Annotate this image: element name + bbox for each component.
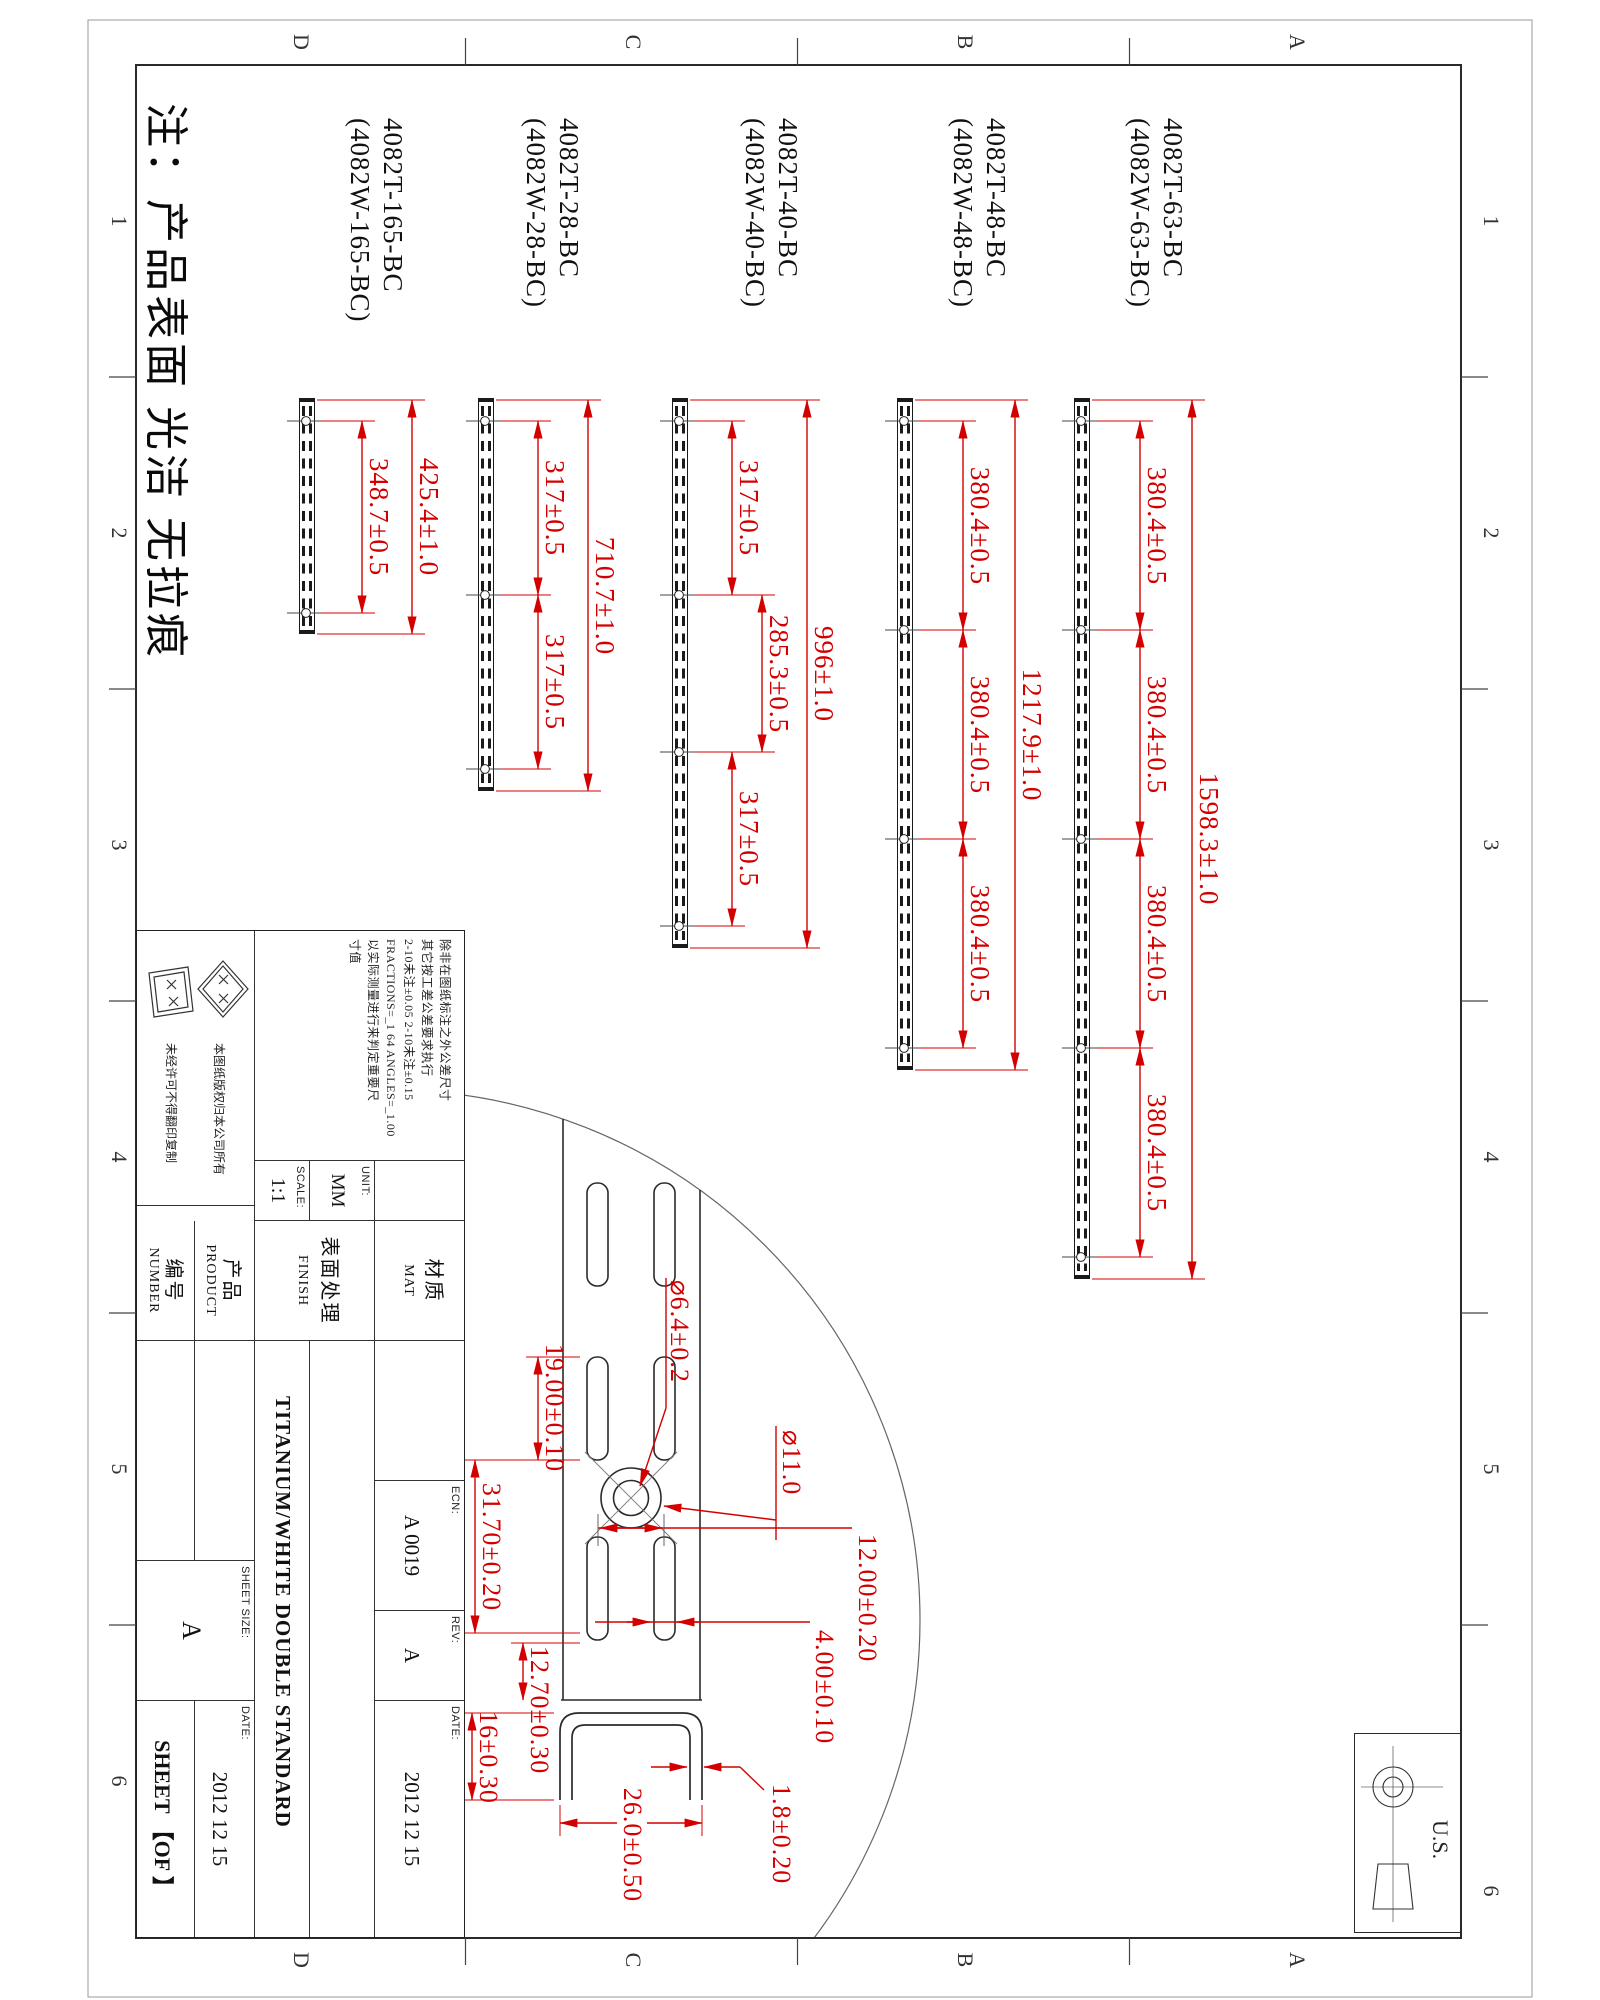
number-label-en: NUMBER [145,1221,161,1340]
ecn-cell: ECN: A 0019 [374,1481,464,1611]
part-name: 4082T-48-BC [979,118,1012,398]
finish-label-cell: 表面处理 FINISH [254,1221,374,1341]
part-alt-name: (4082W-63-BC) [1123,118,1156,398]
dim-slot-width: 4.00±0.10 [809,1630,839,1744]
product-label-en: PRODUCT [202,1221,218,1340]
part-alt-name: (4082W-48-BC) [946,118,979,398]
zone-col-1-bottom: 1 [106,201,132,241]
projection-method-box: U.S. [1354,1733,1462,1933]
dim-overall: 425.4±1.0 [413,417,444,617]
dim-seg: 380.4±0.5 [964,635,995,835]
zone-row-d-left: D [288,24,314,60]
dim-slot-pitch: 31.70±0.20 [476,1462,506,1632]
dim-overall: 996±1.0 [808,574,839,774]
tolerance-note-line: 其它按工差公差要求执行 [418,939,436,1152]
dim-seg: 317±0.5 [539,408,570,608]
title-block: 除非在图纸标注之外公差尺寸 其它按工差公差要求执行 2-10未注±0.05 2-… [136,930,465,1938]
zone-row-a-left: A [1284,24,1310,60]
zone-col-5-top: 5 [1478,1449,1504,1489]
zone-row-c-right: C [620,1942,646,1978]
zone-row-d-right: D [288,1942,314,1978]
number-label-cell: 编号 NUMBER [137,1221,194,1341]
dim-overall: 710.7±1.0 [589,496,620,696]
part-label-48: 4082T-48-BC (4082W-48-BC) [946,118,1012,398]
dim-seg: 317±0.5 [733,408,764,608]
drawing-sheet: 1 2 3 4 5 6 1 2 3 4 5 6 A B C D A B C D … [0,0,1600,2000]
dim-seg: 380.4±0.5 [1141,1053,1172,1253]
unit-value: MM [326,1161,348,1220]
material-label-cell: 材质 MAT [374,1221,464,1341]
projection-label: U.S. [1427,1820,1453,1859]
dim-seg: 380.4±0.5 [964,426,995,626]
material-value-cell [374,1341,464,1481]
zone-row-b-right: B [952,1942,978,1978]
tolerance-note-line: 以实际测量进行来判定重要尺 [364,939,382,1152]
part-label-165: 4082T-165-BC (4082W-165-BC) [343,118,409,398]
copyright-line: 未经许可不得翻印复制 [163,1043,180,1163]
dim-overall: 1217.9±1.0 [1016,635,1047,835]
part-label-40: 4082T-40-BC (4082W-40-BC) [738,118,804,398]
empty-cell [309,1341,374,1937]
zone-col-6-bottom: 6 [106,1761,132,1801]
scanned-drawing-page: 1 2 3 4 5 6 1 2 3 4 5 6 A B C D A B C D … [0,0,1600,2000]
dim-slot-length: 19.00±0.10 [539,1338,569,1478]
part-name: 4082T-165-BC [376,118,409,398]
date2-value: 2012 12 15 [207,1701,232,1937]
dim-seg: 380.4±0.5 [1141,635,1172,835]
part-name: 4082T-28-BC [552,118,585,398]
number-label-cn: 编号 [161,1221,190,1340]
zone-col-3-bottom: 3 [106,825,132,865]
finish-value: TITANIUM/WHITE DOUBLE STANDARD [270,1341,295,1937]
dim-seg: 285.3±0.5 [763,574,794,774]
dim-seg: 380.4±0.5 [964,844,995,1044]
diamond-symbol-icon [198,961,248,1017]
part-alt-name: (4082W-165-BC) [343,118,376,398]
unit-cell: UNIT: MM [309,1161,374,1221]
date-cell: DATE: 2012 12 15 [374,1701,464,1937]
scale-value: 1:1 [266,1161,289,1220]
zone-row-c-left: C [620,24,646,60]
dim-seg: 380.4±0.5 [1141,844,1172,1044]
projection-symbols-cell: 本图纸版权归本公司所有 未经许可不得翻印复制 [137,931,254,1206]
dim-channel-width: 26.0±0.50 [617,1778,647,1912]
tolerance-note-line: 除非在图纸标注之外公差尺寸 [436,939,454,1152]
part-name: 4082T-40-BC [771,118,804,398]
product-label-cell: 产品 PRODUCT [194,1221,254,1341]
projection-symbols [137,931,254,1041]
part-alt-name: (4082W-28-BC) [519,118,552,398]
zone-col-3-top: 3 [1478,825,1504,865]
zone-row-a-right: A [1284,1942,1310,1978]
finish-label-en: FINISH [294,1221,310,1340]
sheet-of-value: SHEET 【OF 】 [148,1701,180,1937]
zone-col-6-top: 6 [1478,1871,1504,1911]
ecn-label: ECN: [449,1486,461,1514]
tolerance-note-line: 2-10未注±0.05 2-10未注±0.15 [400,939,418,1152]
part-name: 4082T-63-BC [1156,118,1189,398]
sheet-size-value: A [176,1561,206,1700]
scale-label: SCALE: [294,1166,306,1208]
product-value-cell [194,1341,254,1561]
part-label-28: 4082T-28-BC (4082W-28-BC) [519,118,585,398]
zone-row-b-left: B [952,24,978,60]
date2-label: DATE: [239,1706,251,1740]
rev-value: A [399,1611,424,1700]
tolerance-note-line: FRACTIONS=_1 64 ANGLES=_1.00 [382,939,400,1152]
surface-note: 注：产品表面 光洁 无拉痕 [138,103,202,661]
zone-col-4-top: 4 [1478,1137,1504,1177]
sheet-size-cell: SHEET SIZE: A [137,1561,254,1701]
dim-seg: 317±0.5 [733,739,764,939]
dim-bore-diameter: ⌀11.0 [776,1430,806,1495]
dim-row-spacing: 12.00±0.20 [852,1534,882,1662]
tolerance-notes-cell: 除非在图纸标注之外公差尺寸 其它按工差公差要求执行 2-10未注±0.05 2-… [254,931,464,1161]
part-alt-name: (4082W-40-BC) [738,118,771,398]
dim-hole-diameter: ⌀6.4±0.2 [664,1280,694,1383]
finish-label-cn: 表面处理 [317,1221,346,1340]
date-label: DATE: [449,1706,461,1740]
part-label-63: 4082T-63-BC (4082W-63-BC) [1123,118,1189,398]
ecn-value: A 0019 [399,1481,424,1610]
scale-cell: SCALE: 1:1 [254,1161,309,1221]
zone-col-4-bottom: 4 [106,1137,132,1177]
dim-seg: 348.7±0.5 [363,417,394,617]
rev-cell: REV: A [374,1611,464,1701]
zone-col-1-top: 1 [1478,201,1504,241]
date2-cell: DATE: 2012 12 15 [194,1701,254,1937]
copyright-line: 本图纸版权归本公司所有 [211,1043,228,1175]
zone-col-2-bottom: 2 [106,513,132,553]
dim-overall: 1598.3±1.0 [1193,739,1224,939]
material-label-en: MAT [400,1221,416,1340]
zone-col-2-top: 2 [1478,513,1504,553]
empty-cell [374,1161,464,1221]
dim-seg: 317±0.5 [539,582,570,782]
product-label-cn: 产品 [219,1221,248,1340]
unit-label: UNIT: [359,1166,371,1196]
material-label-cn: 材质 [421,1221,450,1340]
sheet-size-label: SHEET SIZE: [239,1566,251,1639]
dim-leg-height: 16±0.30 [473,1700,503,1815]
rev-label: REV: [449,1616,461,1643]
dim-thickness: 1.8±0.20 [766,1784,796,1884]
dim-end-gap: 12.70±0.30 [524,1646,554,1774]
finish-value-cell: TITANIUM/WHITE DOUBLE STANDARD [254,1341,309,1937]
zone-col-5-bottom: 5 [106,1449,132,1489]
sheet-of-cell: SHEET 【OF 】 [137,1701,194,1937]
date-value: 2012 12 15 [399,1701,424,1937]
number-value-cell [137,1341,194,1561]
dim-seg: 380.4±0.5 [1141,426,1172,626]
tolerance-note-line: 寸值 [346,939,364,1152]
